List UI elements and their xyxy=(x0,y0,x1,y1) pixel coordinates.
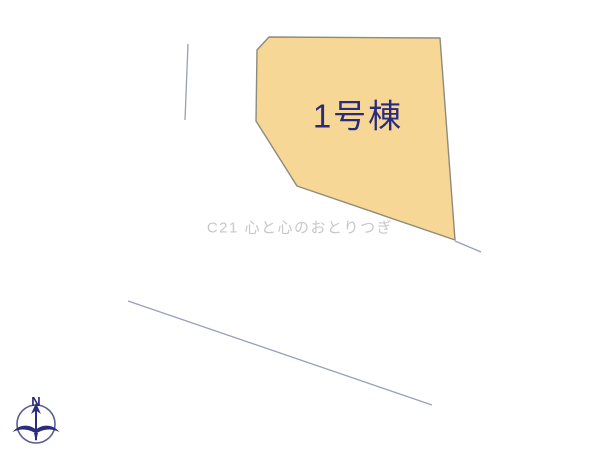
compass-north-icon: N xyxy=(11,392,61,446)
compass-tail-shape xyxy=(34,433,38,442)
watermark-text: C21 心と心のおとりつぎ xyxy=(207,221,393,236)
boundary-line-lot-corner-extension xyxy=(455,241,481,252)
boundary-line-lower-diagonal xyxy=(128,301,432,405)
compass-north-label: N xyxy=(31,394,40,409)
boundary-line-upper-left xyxy=(185,44,188,120)
lot-polygon-building1 xyxy=(256,37,455,240)
plot-diagram-canvas: 1号棟 C21 心と心のおとりつぎ N xyxy=(0,0,600,450)
lot-label-building1: 1号棟 xyxy=(313,100,403,133)
